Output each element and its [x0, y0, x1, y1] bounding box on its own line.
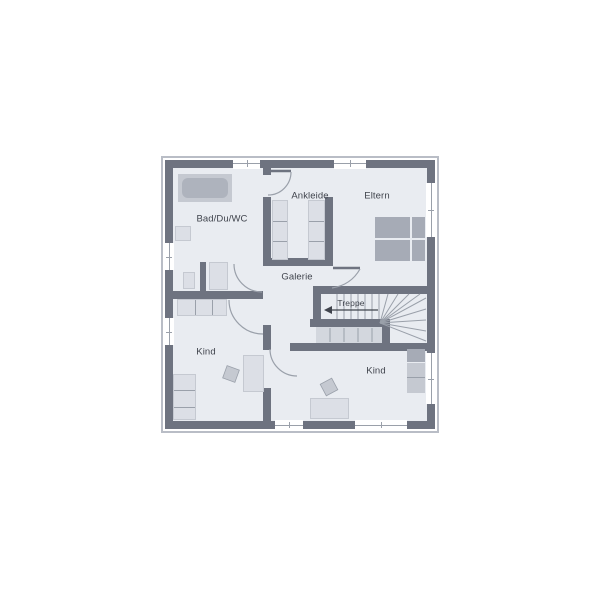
wardrobe-kind-right-bottom [407, 363, 425, 393]
washbasin [175, 226, 191, 241]
bed-eltern-mattress-2 [375, 240, 410, 261]
shower [209, 262, 228, 290]
window-top-right [334, 158, 366, 169]
bed-eltern-mattress-1 [375, 217, 410, 238]
wall-kind-divider-lower [263, 388, 271, 421]
label-galerie: Galerie [281, 272, 312, 283]
bed-kind-right [310, 398, 349, 419]
label-ankleide: Ankleide [291, 191, 328, 202]
wall-bad-shower-stub [200, 262, 206, 292]
window-left-bath [164, 243, 174, 270]
bed-kind-left [173, 374, 196, 420]
window-top-left [233, 158, 260, 169]
bathtub-basin [182, 178, 228, 198]
wall-exterior-top [165, 160, 435, 168]
window-right-eltern [426, 183, 436, 237]
wall-kind-divider-upper [263, 325, 271, 350]
wall-stair-top [313, 286, 435, 294]
bed-eltern-pillow-1 [412, 217, 425, 238]
label-kind-left: Kind [196, 347, 215, 358]
floor-plan: Bad/Du/WC Ankleide Eltern Galerie Treppe… [0, 0, 600, 600]
wall-ankleide-left [263, 197, 271, 259]
label-treppe: Treppe [337, 298, 364, 308]
wall-ankleide-right [325, 197, 333, 259]
wardrobe-kind-right-top [407, 349, 425, 362]
desk-kind-left [243, 355, 264, 392]
wardrobe-ankleide-left [272, 200, 288, 260]
window-bottom-left [275, 420, 303, 430]
label-eltern: Eltern [364, 191, 389, 202]
bed-eltern-pillow-2 [412, 240, 425, 261]
window-bottom-right [355, 420, 407, 430]
wardrobe-kind-left [177, 299, 227, 316]
label-bad: Bad/Du/WC [196, 214, 247, 225]
wall-stair-mid [310, 319, 390, 327]
wc-toilet [183, 272, 195, 289]
wall-ankleide-left-stub [263, 168, 271, 175]
wall-bad-bottom [165, 291, 263, 299]
window-right-kind [426, 353, 436, 404]
label-kind-right: Kind [366, 366, 385, 377]
stair-lower-flight [316, 327, 382, 343]
wardrobe-ankleide-right [308, 200, 325, 260]
window-left-kind [164, 318, 174, 345]
